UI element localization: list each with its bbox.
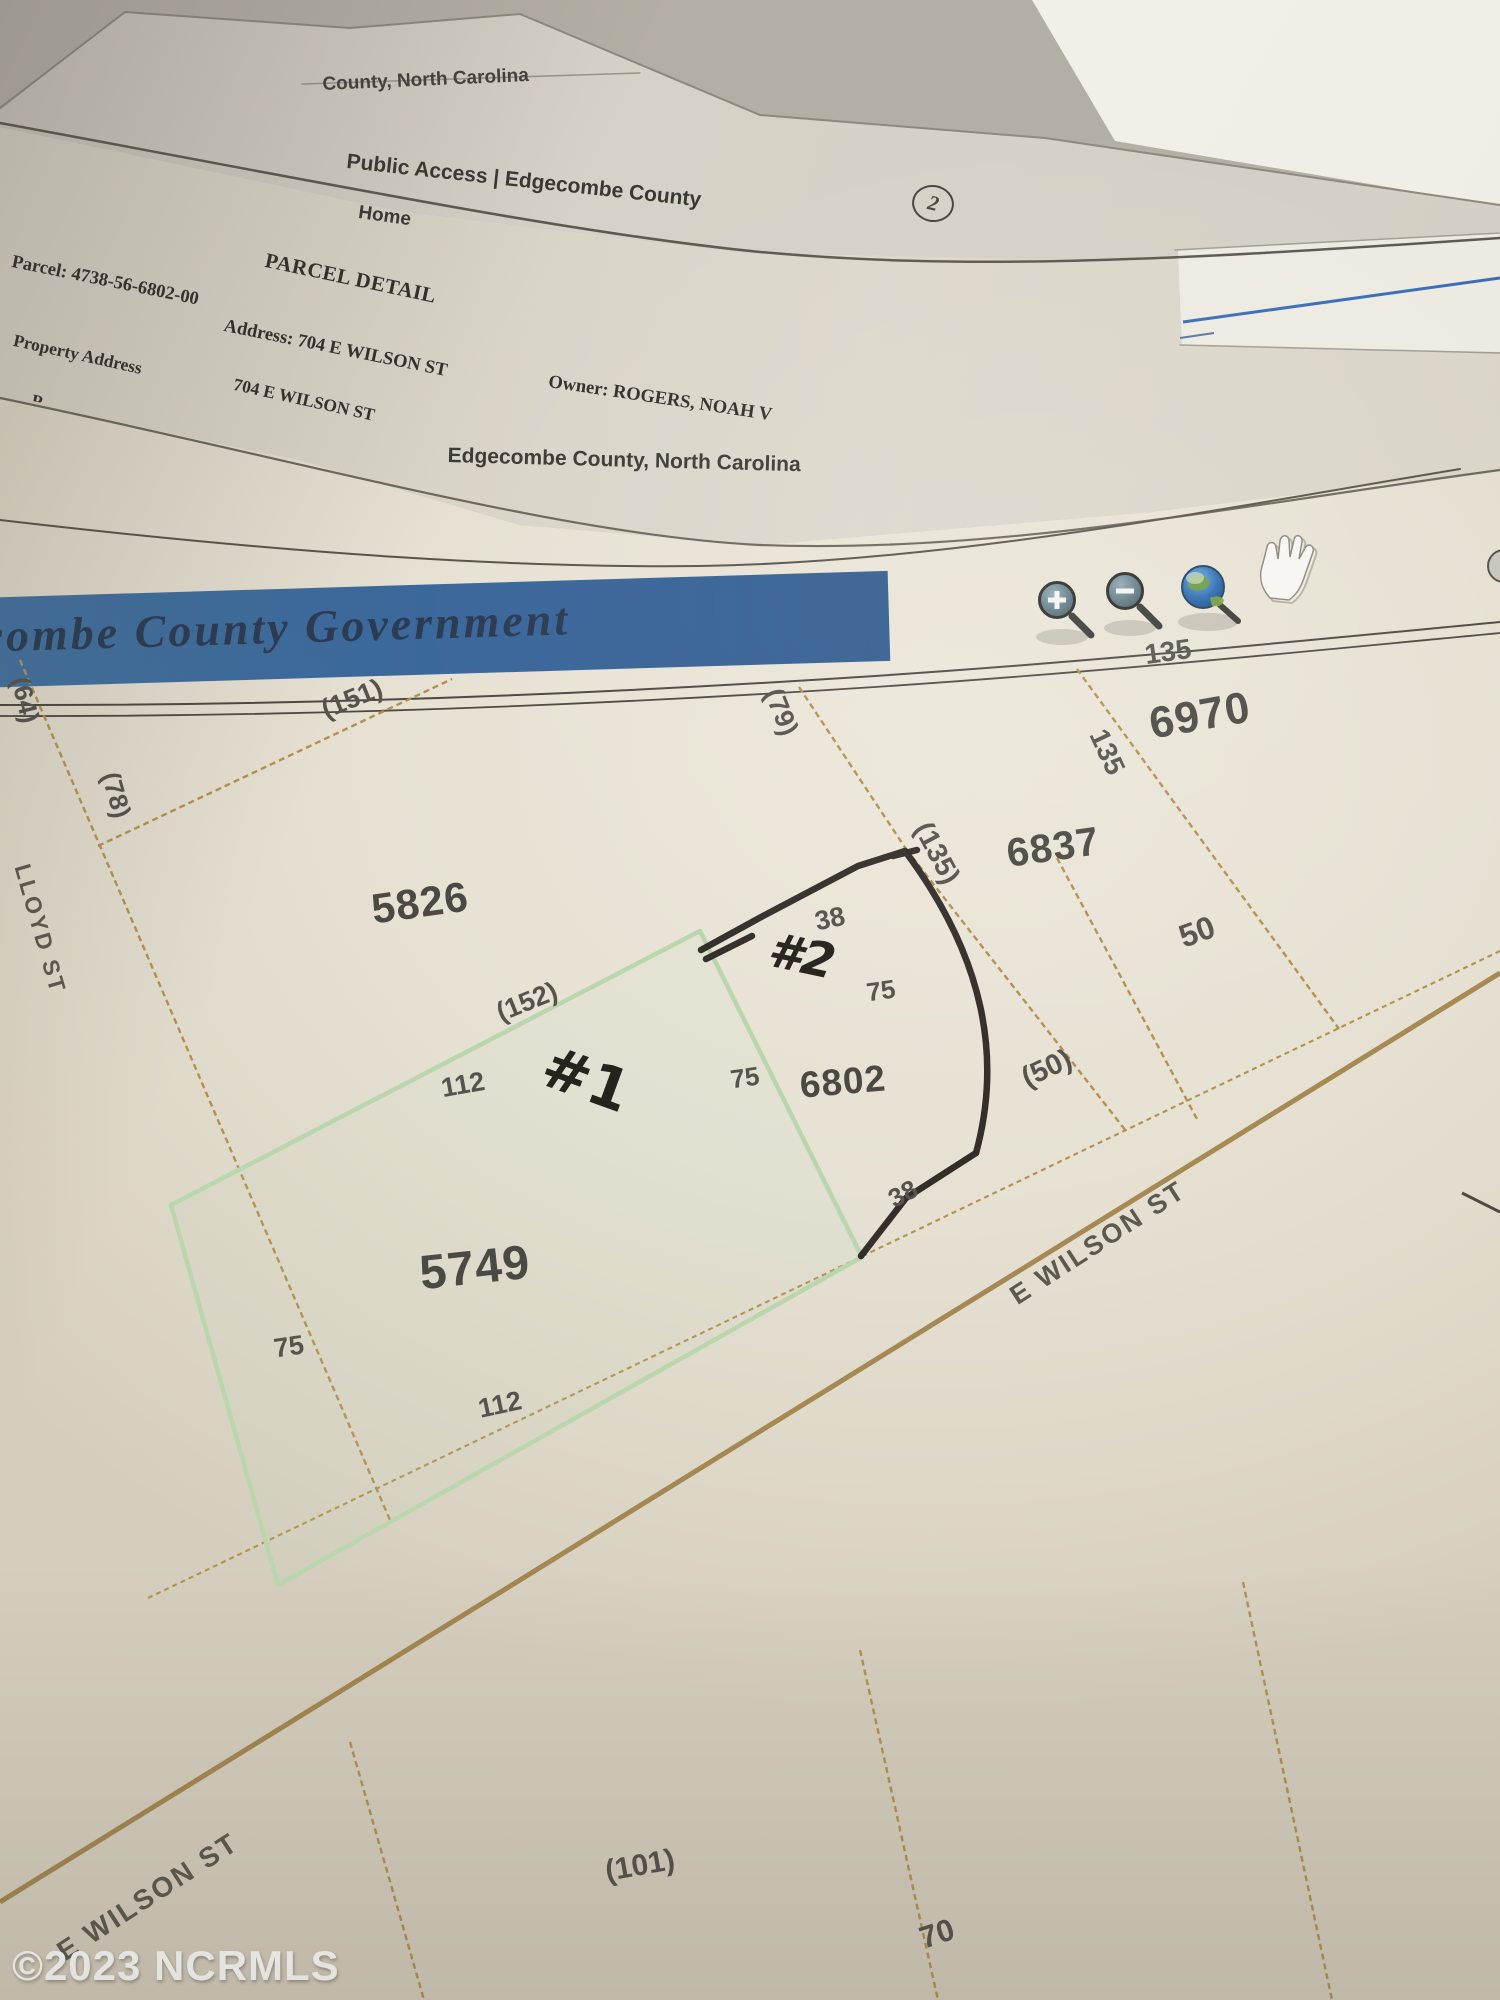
parcel-number-label: 5749 — [417, 1235, 533, 1301]
dimension-label: (101) — [603, 1843, 678, 1889]
dimension-label: 112 — [475, 1385, 524, 1424]
map-labels: 58266970683768025749(64)(151)(78)(79)135… — [0, 0, 1500, 2000]
parcel-number-label: 5826 — [368, 872, 471, 933]
street-label: LLOYD ST — [9, 861, 72, 997]
dimension-label: 135 — [1143, 633, 1194, 671]
dimension-label: 70 — [915, 1912, 959, 1957]
dimension-label: (135) — [908, 817, 967, 890]
photo-background: ecombe County Government — [0, 0, 1500, 2000]
parcel-number-label: 6837 — [1004, 819, 1102, 877]
dimension-label: 112 — [439, 1066, 487, 1104]
dimension-label: (64) — [4, 674, 45, 726]
dimension-label: (50) — [1017, 1043, 1078, 1095]
dimension-label: 75 — [272, 1330, 306, 1365]
dimension-label: (79) — [758, 684, 805, 740]
dimension-label: 38 — [883, 1174, 923, 1215]
dimension-label: (78) — [95, 768, 138, 821]
street-label: E WILSON ST — [1004, 1175, 1191, 1312]
dimension-label: 135 — [1083, 724, 1132, 780]
dimension-label: (152) — [492, 976, 562, 1028]
dimension-label: 75 — [865, 974, 898, 1009]
parcel-number-label: 6802 — [798, 1057, 888, 1106]
dimension-label: (151) — [317, 673, 387, 725]
watermark: ©2023 NCRMLS — [12, 1942, 340, 1990]
dimension-label: 50 — [1174, 909, 1220, 956]
dimension-label: 75 — [729, 1061, 762, 1096]
parcel-number-label: 6970 — [1145, 683, 1254, 750]
